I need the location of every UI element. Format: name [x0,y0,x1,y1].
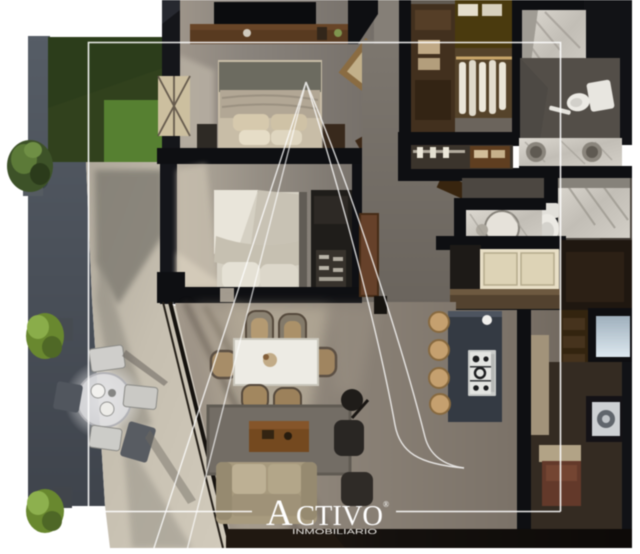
svg-text:INMOBILIARIO: INMOBILIARIO [292,527,377,536]
svg-text:®: ® [383,500,389,509]
svg-text:A: A [266,493,293,534]
